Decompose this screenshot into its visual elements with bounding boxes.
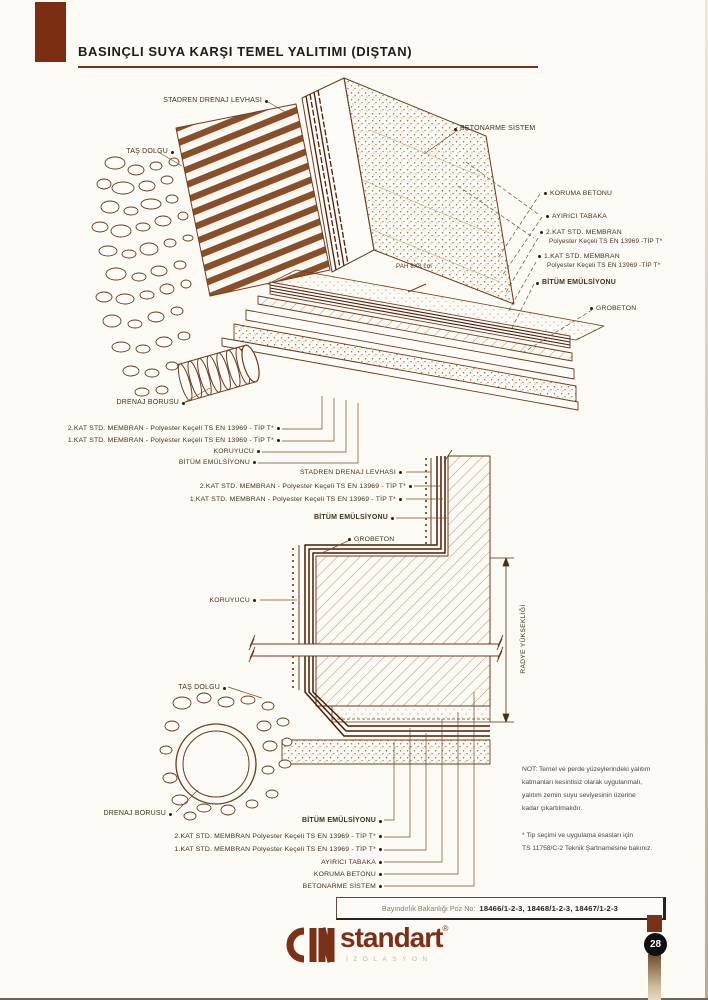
standart-logo-subtitle: İZOLASYON xyxy=(346,956,433,963)
label-betonarme-sistem-lower: BETONARME SİSTEM xyxy=(303,883,382,891)
leader-dot xyxy=(590,307,593,310)
leader-dot xyxy=(379,835,382,838)
label-stadren-drenaj-levhasi-upper: STADREN DRENAJ LEVHASI xyxy=(163,97,268,105)
poz-label: Bayındırlık Bakanlığı Poz No: xyxy=(382,904,475,913)
leader-dot xyxy=(253,461,256,464)
standart-logo-emblem xyxy=(280,924,336,966)
leader-dot xyxy=(171,151,174,154)
label-bitum-emulsiyonu-upper: BİTÜM EMÜLSİYONU xyxy=(536,279,616,287)
label-radye-yuksekligi: RADYE YÜKSEKLİĞİ xyxy=(520,556,527,722)
leader-dot xyxy=(379,848,382,851)
leader-dot xyxy=(277,439,280,442)
leader-dot xyxy=(348,538,351,541)
leader-dot xyxy=(379,820,382,823)
poz-numbers: 18466/1-2-3, 18468/1-2-3, 18467/1-2-3 xyxy=(479,904,618,913)
label-grobeton-lower: GROBETON xyxy=(348,536,394,544)
leader-dot xyxy=(538,255,541,258)
stone-fill-upper xyxy=(92,157,193,396)
label-drenaj-borusu-upper: DRENAJ BORUSU xyxy=(117,399,186,407)
leader-dot xyxy=(399,471,402,474)
leader-dot xyxy=(399,498,402,501)
label-koruma-betonu-upper: KORUMA BETONU xyxy=(544,190,612,198)
label-kat2-membran-upper: 2.KAT STD. MEMBRAN Polyester Keçeli TS E… xyxy=(540,229,662,245)
label-tas-dolgu-lower: TAŞ DOLGU xyxy=(178,684,226,692)
drain-pipe-upper xyxy=(174,343,262,402)
leader-dot xyxy=(265,100,268,103)
label-ayirici-tabaka-upper: AYIRICI TABAKA xyxy=(546,213,607,221)
label-bitum-emulsiyonu-lower-bottom: BİTÜM EMÜLSİYONU xyxy=(302,817,382,825)
label-pah: PAH 8X8 cm xyxy=(396,264,432,271)
page-number-badge: 28 xyxy=(644,933,667,956)
leader-dot xyxy=(257,450,260,453)
leader-dot xyxy=(182,402,185,405)
leader-dot xyxy=(169,813,172,816)
leader-dot xyxy=(409,485,412,488)
leader-dot xyxy=(536,282,539,285)
label-stadren-lower: STADREN DRENAJ LEVHASI xyxy=(300,469,402,477)
leader-dot xyxy=(379,861,382,864)
label-kat2-long2-lower: 2.KAT STD. MEMBRAN Polyester Keçeli TS E… xyxy=(174,833,382,841)
label-bitum-emulsiyonu-lower-top: BİTÜM EMÜLSİYONU xyxy=(314,514,394,522)
standart-wordmark: standart® xyxy=(340,924,448,952)
label-kat1-membran-upper: 1.KAT STD. MEMBRAN Polyester Keçeli TS E… xyxy=(538,253,660,269)
note-block-1: NOT: Temel ve perde yüzeylerindeki yalıt… xyxy=(522,763,698,815)
catalog-page: BASINÇLI SUYA KARŞI TEMEL YALITIMI (DIŞT… xyxy=(0,0,708,1000)
poz-number-box: Bayındırlık Bakanlığı Poz No: 18466/1-2-… xyxy=(336,897,666,920)
leader-dot xyxy=(223,687,226,690)
label-drenaj-borusu-lower: DRENAJ BORUSU xyxy=(104,810,173,818)
label-koruma-betonu-lower: KORUMA BETONU xyxy=(314,871,382,879)
label-koruyucu-upper: KORUYUCU xyxy=(214,448,261,456)
label-ayirici-tabaka-lower: AYIRICI TABAKA xyxy=(321,859,382,867)
label-koruyucu-lower: KORUYUCU xyxy=(210,597,257,605)
label-kat2-long-lower: 2.KAT STD. MEMBRAN - Polyester Keçeli TS… xyxy=(200,483,412,491)
label-kat1-long-lower: 1.KAT STD. MEMBRAN - Polyester Keçeli TS… xyxy=(190,496,402,504)
leader-dot xyxy=(454,128,457,131)
label-kat1-long-upper: 1.KAT STD. MEMBRAN - Polyester Keçeli TS… xyxy=(68,437,280,445)
page-edge-gradient-bar xyxy=(648,954,661,1000)
label-bitum-emulsiyonu2-upper: BİTÜM EMÜLSİYONU xyxy=(179,459,256,467)
leader-dot xyxy=(379,885,382,888)
page-edge-brown-square xyxy=(647,915,662,932)
note-block-2: * Tip seçimi ve uygulama esasları için T… xyxy=(522,829,698,855)
label-kat1-long2-lower: 1.KAT STD. MEMBRAN Polyester Keçeli TS E… xyxy=(174,846,382,854)
leader-dot xyxy=(391,517,394,520)
leader-dot xyxy=(379,873,382,876)
label-betonarme-sistem-upper: BETONARME SİSTEM xyxy=(454,125,535,133)
label-tas-dolgu-upper: TAŞ DOLGU xyxy=(126,148,174,156)
label-kat2-long-upper: 2.KAT STD. MEMBRAN - Polyester Keçeli TS… xyxy=(68,425,280,433)
leader-dot xyxy=(546,215,549,218)
label-grobeton-upper: GROBETON xyxy=(590,305,636,313)
leader-dot xyxy=(544,192,547,195)
leader-dot xyxy=(277,427,280,430)
leader-dot xyxy=(540,231,543,234)
leader-dot xyxy=(253,599,256,602)
